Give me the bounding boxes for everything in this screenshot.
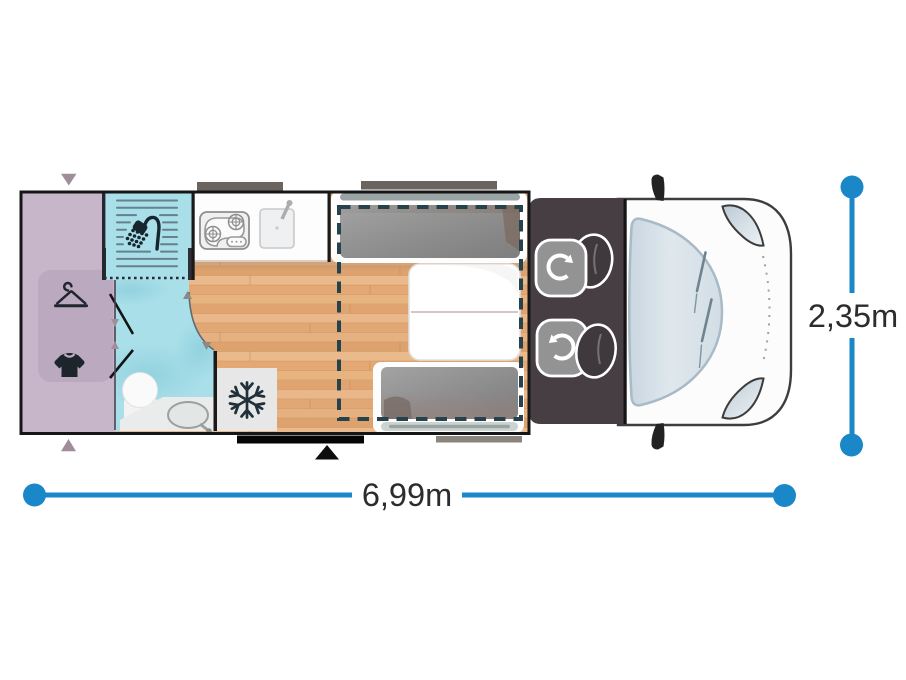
svg-text:2,35m: 2,35m (808, 298, 898, 334)
svg-text:6,99m: 6,99m (362, 477, 452, 513)
